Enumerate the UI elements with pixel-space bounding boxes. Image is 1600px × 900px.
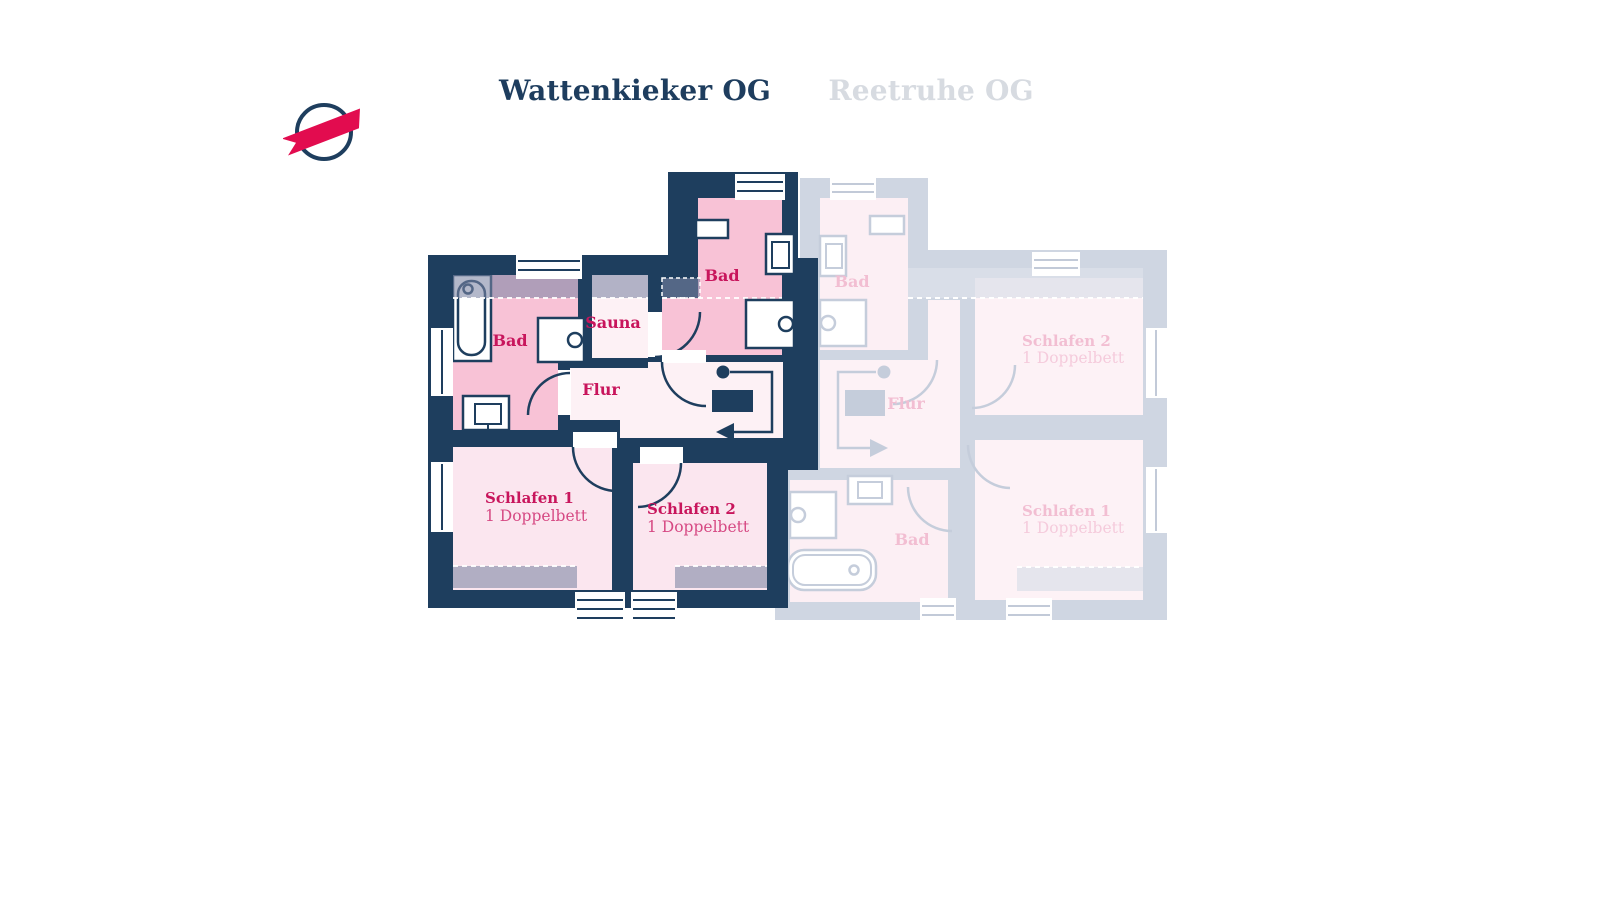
faded-label-bad-top: Bad [834, 272, 869, 291]
label-flur: Flur [582, 380, 620, 399]
slope-band-sauna [592, 275, 648, 298]
window-top-main [516, 253, 582, 279]
window-bottom-schlafen2 [631, 592, 677, 622]
faded-label-schlafen2: Schlafen 2 [1022, 332, 1111, 350]
window-left-schlafen1 [431, 462, 453, 532]
window-left-bad [431, 328, 453, 396]
faded-slope-band-top [908, 268, 1143, 298]
sublabel-schlafen2: 1 Doppelbett [647, 518, 750, 536]
faded-toilet-icon-top [820, 236, 846, 276]
sublabel-schlafen1: 1 Doppelbett [485, 507, 588, 525]
faded-label-schlafen1: Schlafen 1 [1022, 502, 1111, 520]
toilet-icon-bad-top [766, 234, 794, 274]
faded-window-top-right [1032, 252, 1080, 276]
faded-window-top-left [830, 176, 876, 200]
label-schlafen1: Schlafen 1 [485, 489, 574, 507]
slope-band-corridor [662, 278, 700, 298]
faded-corridor [928, 300, 960, 360]
faded-slope-band-bottom [1017, 567, 1143, 591]
faded-sublabel-schlafen1: 1 Doppelbett [1022, 519, 1125, 537]
shelf-icon-bad-top [696, 220, 728, 238]
faded-window-bottom-1 [920, 598, 956, 624]
active-floorplan-wattenkieker: Bad Sauna Bad Flur Schlafen 1 1 Doppelbe… [415, 165, 820, 630]
label-bad-top: Bad [704, 266, 739, 285]
brand-logo [283, 96, 373, 170]
faded-window-right-1 [1146, 328, 1167, 398]
faded-label-flur: Flur [887, 394, 925, 413]
slope-band-schlafen1 [453, 566, 577, 588]
label-sauna: Sauna [585, 313, 641, 332]
faded-toilet-icon-bottom [848, 476, 892, 504]
sink-icon-bad-top [746, 300, 794, 348]
window-bottom-schlafen1 [575, 592, 625, 622]
faded-sink-icon-top [820, 300, 866, 346]
faded-sublabel-schlafen2: 1 Doppelbett [1022, 349, 1125, 367]
faded-room-flur [820, 360, 960, 468]
faded-label-bad-bottom: Bad [894, 530, 929, 549]
label-schlafen2: Schlafen 2 [647, 500, 736, 518]
slope-band-schlafen2 [675, 566, 767, 588]
faded-floorplan-reetruhe: Bad Flur Bad Schlafen 2 1 Doppelbett Sch… [770, 165, 1170, 630]
faded-window-right-2 [1146, 467, 1167, 533]
label-bad-left: Bad [492, 331, 527, 350]
floorplan-page: Wattenkieker OG Reetruhe OG [0, 0, 1600, 900]
tab-reetruhe-og[interactable]: Reetruhe OG [828, 74, 1033, 107]
tab-wattenkieker-og[interactable]: Wattenkieker OG [499, 74, 771, 107]
faded-shelf-icon [870, 216, 904, 234]
faded-window-bottom-2 [1006, 598, 1052, 624]
window-top-bad [735, 174, 785, 200]
toilet-icon-bad-left [463, 396, 509, 430]
sink-icon-bad-left [538, 318, 584, 362]
